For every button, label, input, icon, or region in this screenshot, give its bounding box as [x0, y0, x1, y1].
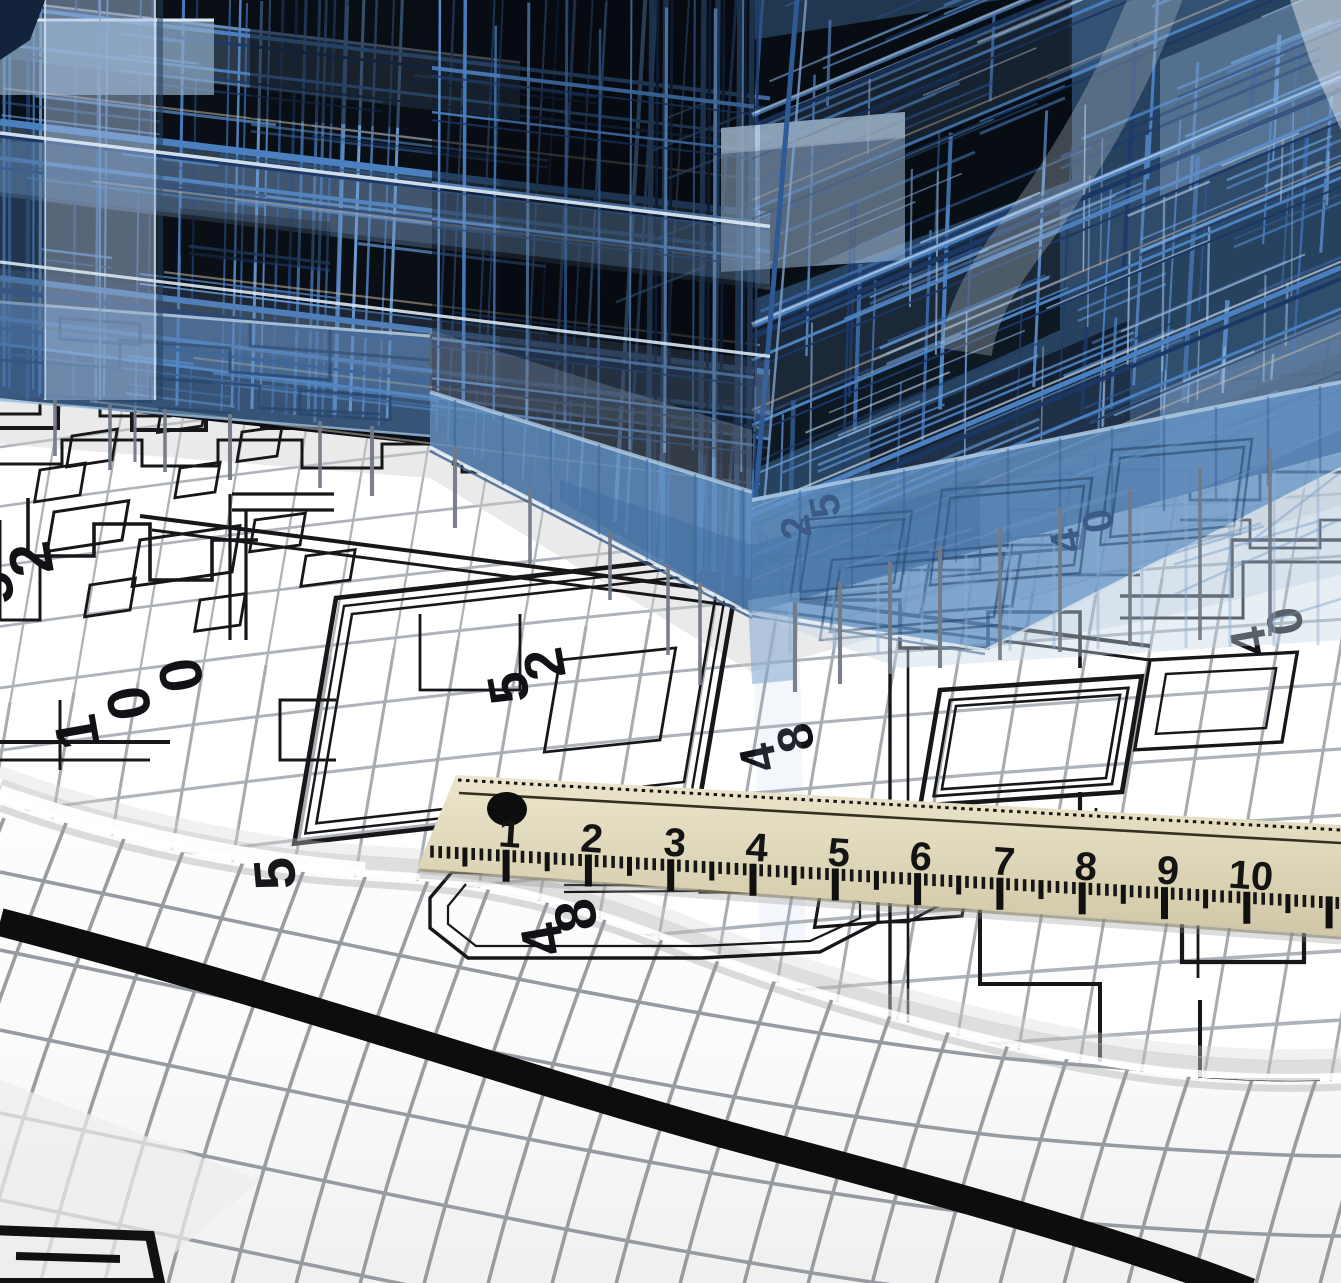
svg-text:5: 5 — [826, 830, 851, 875]
svg-text:9: 9 — [1155, 848, 1180, 893]
svg-text:10: 10 — [1227, 853, 1274, 900]
svg-text:2: 2 — [579, 816, 604, 861]
svg-text:8: 8 — [1073, 844, 1098, 889]
svg-text:4: 4 — [744, 825, 770, 870]
svg-text:6: 6 — [908, 834, 933, 879]
svg-text:3: 3 — [662, 820, 687, 865]
svg-text:7: 7 — [991, 839, 1016, 884]
svg-text:1: 1 — [497, 811, 522, 856]
svg-text:5: 5 — [241, 855, 309, 893]
